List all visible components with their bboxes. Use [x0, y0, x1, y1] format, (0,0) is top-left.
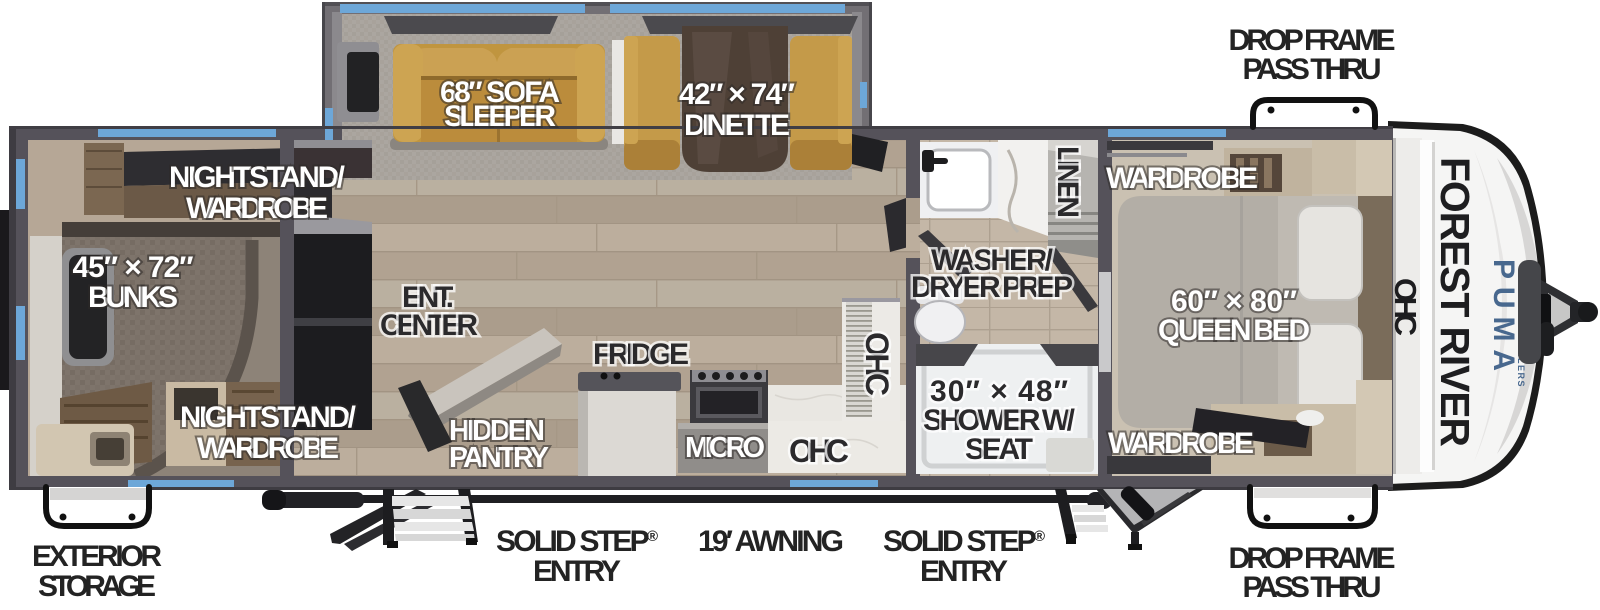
svg-text:LINEN: LINEN: [1051, 146, 1084, 218]
svg-text:PANTRY: PANTRY: [449, 442, 549, 474]
svg-text:OHC: OHC: [1388, 278, 1423, 336]
svg-text:WARDROBE: WARDROBE: [1108, 427, 1254, 460]
svg-text:FRIDGE: FRIDGE: [593, 338, 689, 371]
svg-text:PASS THRU: PASS THRU: [1243, 53, 1382, 86]
svg-text:OHC: OHC: [859, 332, 895, 396]
svg-text:DINETTE: DINETTE: [684, 109, 790, 142]
svg-text:NIGHTSTAND/: NIGHTSTAND/: [169, 161, 346, 194]
svg-text:EXTERIOR: EXTERIOR: [32, 540, 162, 573]
svg-text:OHC: OHC: [789, 433, 849, 469]
svg-text:ENTRY: ENTRY: [533, 555, 621, 588]
svg-text:WARDROBE: WARDROBE: [1106, 162, 1258, 195]
svg-text:DRYER PREP: DRYER PREP: [911, 271, 1073, 304]
svg-text:QUEEN BED: QUEEN BED: [1158, 314, 1310, 347]
svg-text:WARDROBE: WARDROBE: [186, 192, 328, 225]
svg-text:42″ × 74″: 42″ × 74″: [679, 78, 795, 111]
svg-text:STORAGE: STORAGE: [38, 570, 156, 603]
svg-text:MICRO: MICRO: [685, 432, 765, 464]
svg-text:SLEEPER: SLEEPER: [444, 100, 556, 133]
svg-text:ENTRY: ENTRY: [920, 555, 1008, 588]
svg-text:19′ AWNING: 19′ AWNING: [698, 525, 844, 558]
svg-text:SEAT: SEAT: [965, 433, 1033, 466]
svg-text:SOLID STEP®: SOLID STEP®: [496, 525, 658, 558]
svg-text:CENTER: CENTER: [380, 309, 478, 342]
svg-text:SOLID STEP®: SOLID STEP®: [883, 525, 1045, 558]
svg-text:FOREST RIVER: FOREST RIVER: [1432, 157, 1478, 447]
svg-text:BUNKS: BUNKS: [88, 281, 178, 314]
svg-text:45″ × 72″: 45″ × 72″: [73, 251, 194, 284]
svg-text:NIGHTSTAND/: NIGHTSTAND/: [180, 401, 357, 434]
svg-text:WARDROBE: WARDROBE: [197, 432, 339, 465]
svg-text:PASS THRU: PASS THRU: [1243, 571, 1382, 604]
